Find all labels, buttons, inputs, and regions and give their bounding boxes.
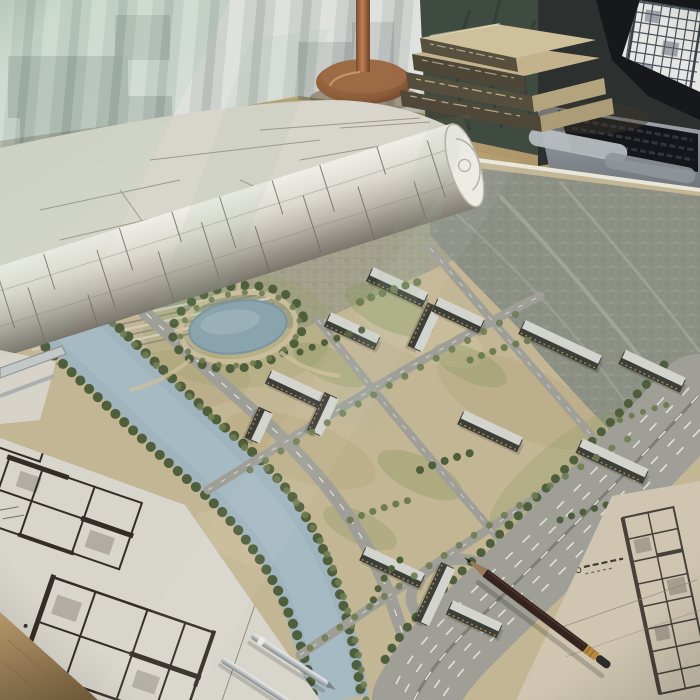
vignette: [0, 0, 700, 700]
architect-desk-scene: [0, 0, 700, 700]
scene-canvas: [0, 0, 700, 700]
reflection-overlays: [0, 0, 700, 700]
